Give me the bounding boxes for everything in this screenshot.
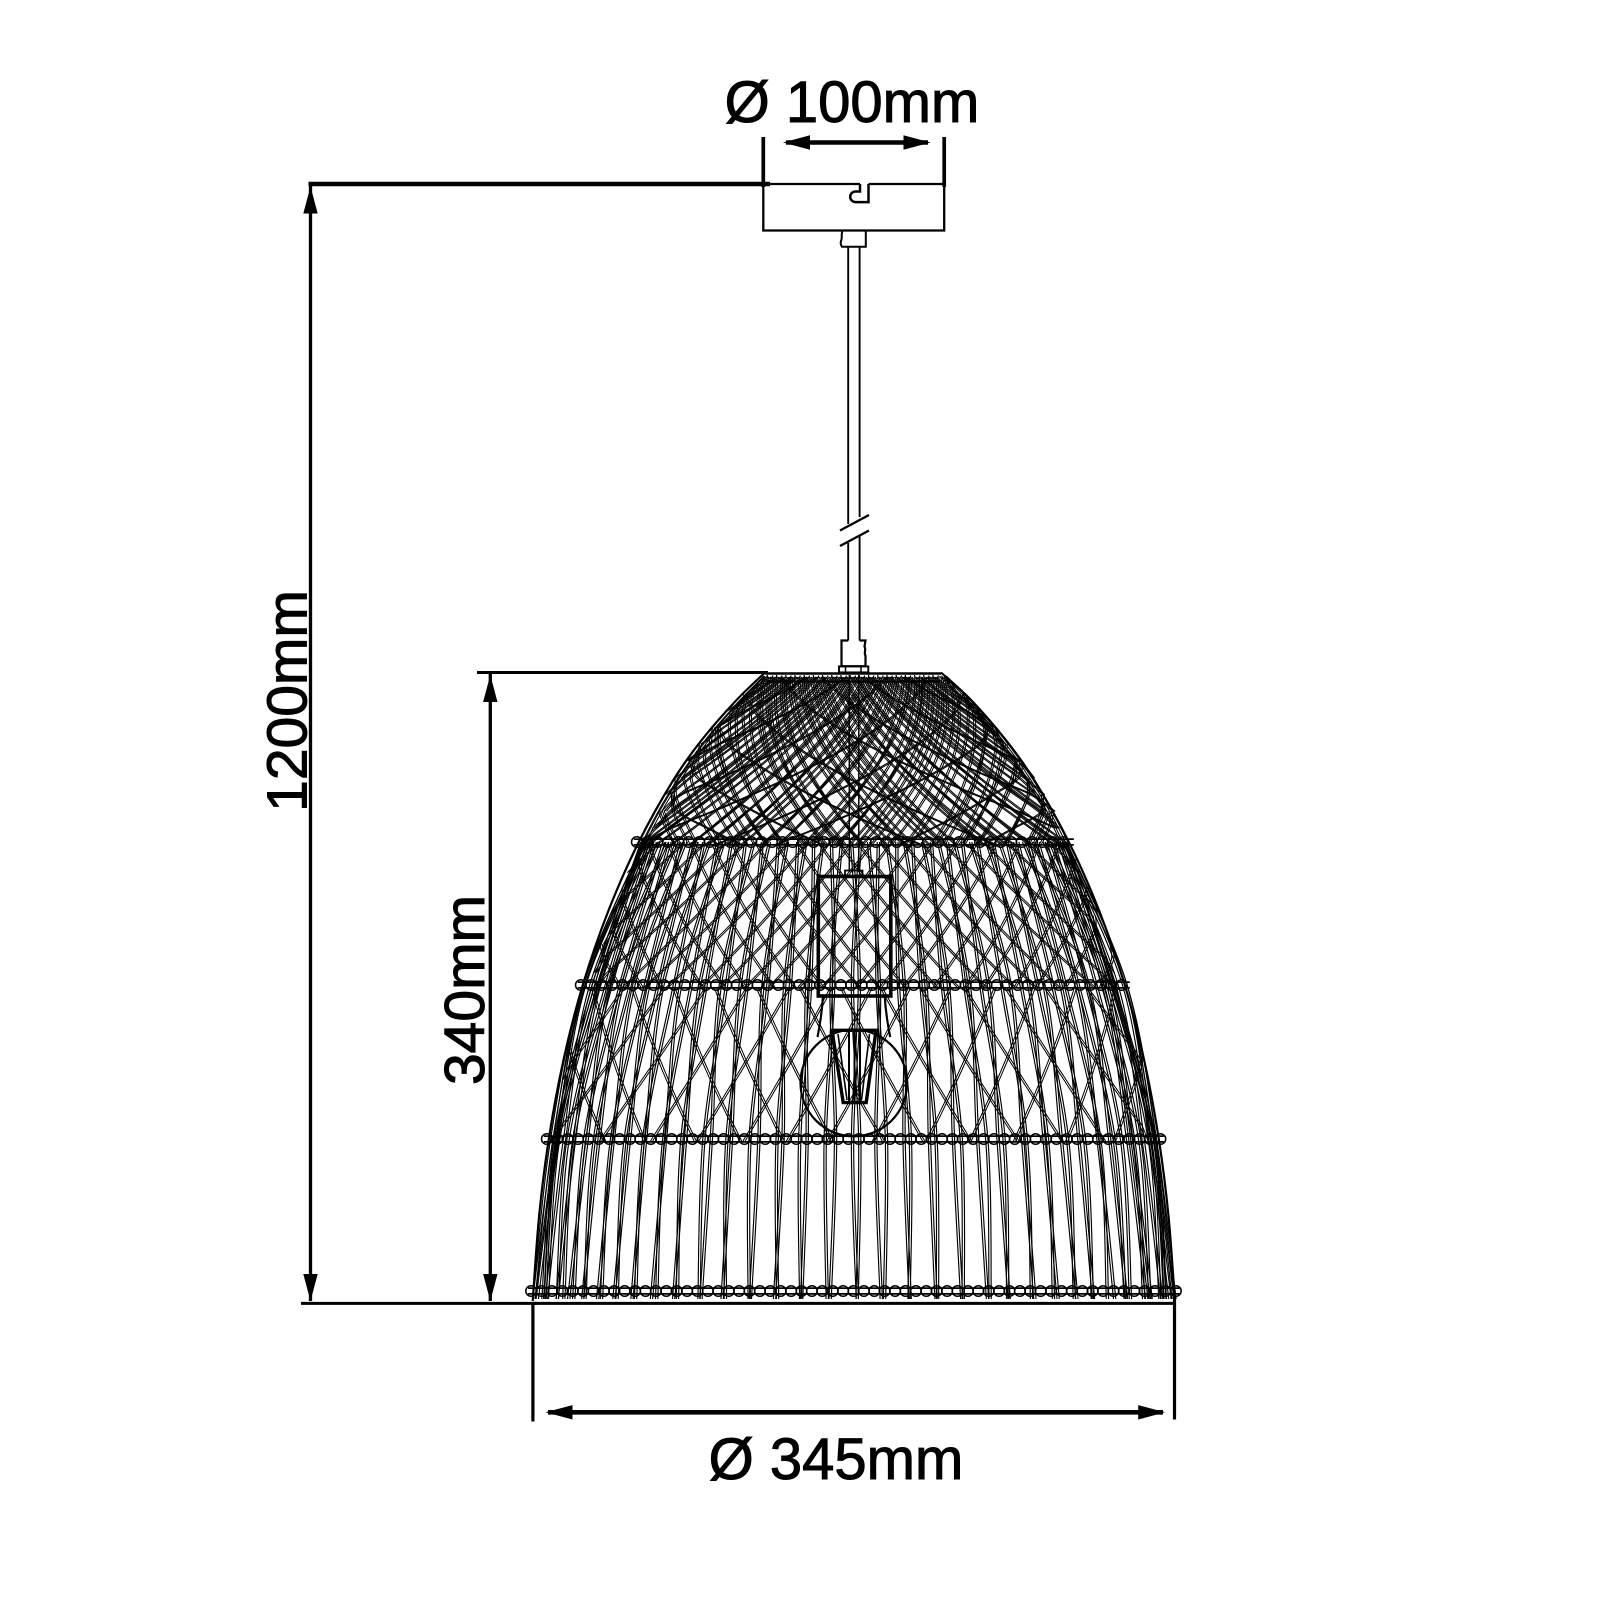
svg-text:Ø 345mm: Ø 345mm — [709, 1427, 964, 1492]
svg-text:Ø 100mm: Ø 100mm — [725, 70, 980, 135]
svg-text:1200mm: 1200mm — [256, 590, 320, 812]
svg-text:340mm: 340mm — [433, 895, 497, 1085]
